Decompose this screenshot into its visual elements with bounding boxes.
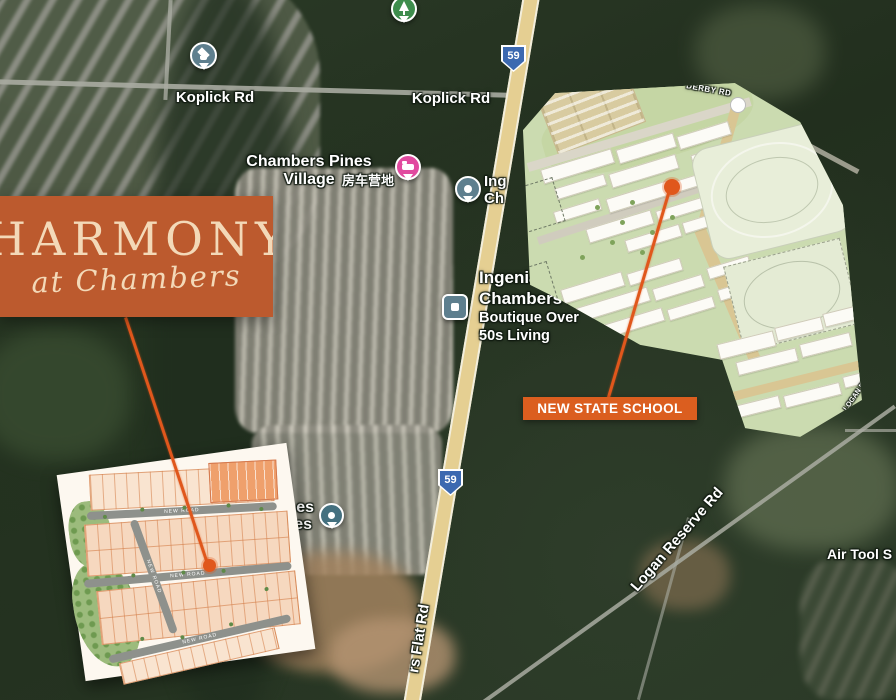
poi-label-chambers-pines-village-cn: 房车营地 bbox=[330, 170, 406, 189]
connector-dot-siteplan bbox=[203, 559, 216, 572]
inset-orange-lots bbox=[208, 459, 278, 503]
poi-label-air-tool: Air Tool S bbox=[827, 546, 892, 562]
ingenia-line4: 50s Living bbox=[479, 327, 612, 345]
connector-dot-school bbox=[664, 179, 680, 195]
bed-pillow-icon bbox=[402, 161, 407, 164]
chambers-pines-poi-pin[interactable] bbox=[319, 503, 344, 528]
logan-side-road bbox=[845, 429, 896, 432]
park-poi-pin[interactable] bbox=[391, 0, 417, 22]
lodging-pin-icon[interactable] bbox=[395, 154, 421, 180]
tree-dot bbox=[630, 200, 635, 205]
tree-dot bbox=[670, 215, 675, 220]
bed-icon bbox=[402, 164, 414, 170]
houses-texture-bottomright bbox=[800, 560, 896, 700]
satellite-map[interactable]: Koplick Rd Koplick Rd rs Flat Rd Logan R… bbox=[0, 0, 896, 700]
tree-dot bbox=[640, 250, 645, 255]
tree-icon bbox=[399, 1, 409, 11]
new-state-school-callout: NEW STATE SCHOOL bbox=[523, 397, 697, 420]
road-label-koplick-right: Koplick Rd bbox=[396, 90, 506, 107]
ingenia-lifestyle-icon[interactable] bbox=[442, 294, 468, 320]
tree-dot bbox=[595, 205, 600, 210]
tree-dot bbox=[580, 255, 585, 260]
tree-dot bbox=[610, 240, 615, 245]
grass-clearing bbox=[0, 330, 130, 460]
poi-label-ingenia-partial-2: Ch bbox=[484, 190, 504, 207]
grass-clearing bbox=[725, 425, 896, 550]
tree-trunk-icon bbox=[403, 11, 405, 15]
square-dot-icon bbox=[451, 303, 459, 311]
poi-label-ingenia-partial-1: Ing bbox=[484, 173, 507, 190]
school-poi-pin[interactable] bbox=[190, 42, 217, 69]
graduation-cap-base-icon bbox=[200, 56, 207, 60]
ingenia-poi-pin[interactable] bbox=[455, 176, 481, 202]
road-label-koplick-left: Koplick Rd bbox=[160, 89, 270, 106]
dot-icon bbox=[328, 512, 335, 519]
harmony-siteplan-inset: NEW ROAD NEW ROAD NEW ROAD NEW ROAD bbox=[57, 443, 316, 681]
dot-icon bbox=[464, 185, 472, 193]
dirt-clearing bbox=[330, 618, 455, 693]
harmony-logo: HARMONY at Chambers bbox=[0, 196, 273, 317]
tree-dot bbox=[620, 220, 625, 225]
school-masterplan-overlay: DERBY RD LOGAN RESERVE RD bbox=[500, 55, 896, 440]
